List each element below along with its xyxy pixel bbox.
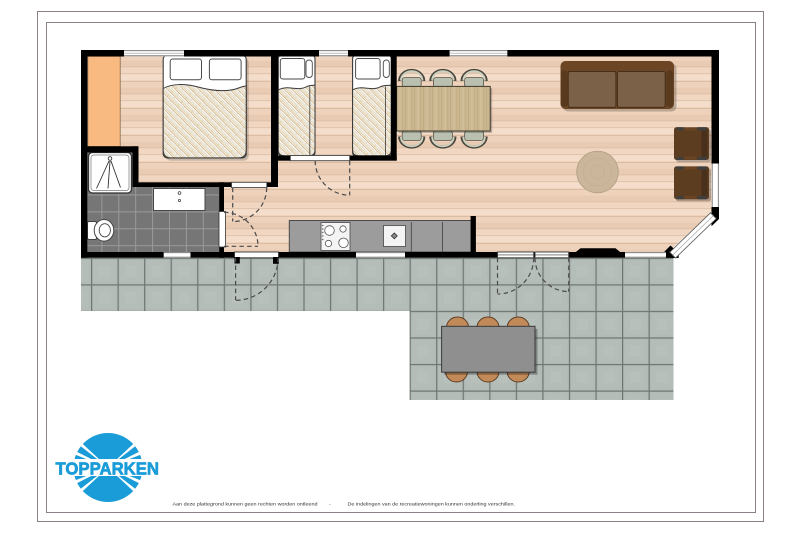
svg-text:De indelingen van de recreatie: De indelingen van de recreatiewoningen k… (348, 502, 516, 508)
svg-text:TOPPARKEN: TOPPARKEN (56, 459, 160, 479)
svg-text:Aan deze plattegrond kunnen ge: Aan deze plattegrond kunnen geen rechten… (173, 502, 318, 508)
